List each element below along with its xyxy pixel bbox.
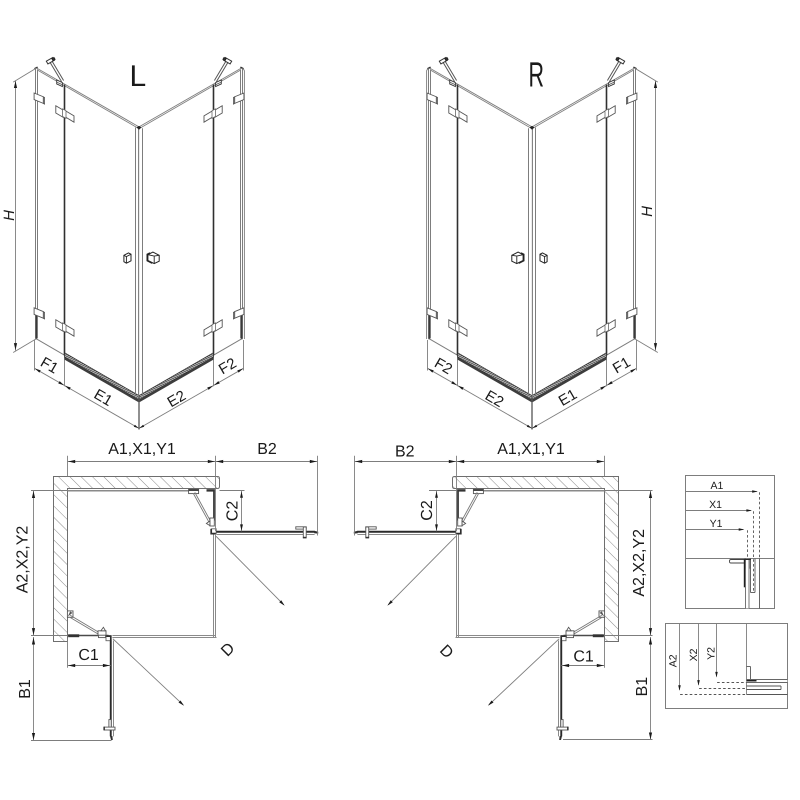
svg-text:B2: B2 — [257, 441, 277, 458]
svg-text:A1: A1 — [710, 480, 723, 492]
svg-text:B1: B1 — [634, 677, 651, 697]
svg-text:C1: C1 — [78, 647, 99, 664]
svg-text:Y1: Y1 — [710, 518, 723, 530]
svg-text:R: R — [529, 56, 545, 95]
svg-text:A1,X1,Y1: A1,X1,Y1 — [108, 441, 176, 458]
svg-text:L: L — [130, 60, 147, 93]
svg-text:A1,X1,Y1: A1,X1,Y1 — [497, 441, 565, 458]
svg-text:C1: C1 — [573, 649, 594, 666]
svg-text:B2: B2 — [395, 443, 415, 460]
svg-text:B1: B1 — [17, 679, 34, 699]
svg-text:X2: X2 — [688, 648, 700, 661]
svg-text:A2,X2,Y2: A2,X2,Y2 — [631, 529, 648, 597]
svg-text:H: H — [1, 210, 18, 221]
svg-text:Y2: Y2 — [706, 647, 718, 660]
svg-text:A2,X2,Y2: A2,X2,Y2 — [15, 526, 32, 594]
svg-text:C2: C2 — [224, 501, 241, 522]
svg-text:C2: C2 — [419, 500, 436, 521]
svg-text:H: H — [639, 206, 656, 217]
svg-text:A2: A2 — [668, 654, 680, 667]
svg-text:X1: X1 — [709, 499, 722, 511]
